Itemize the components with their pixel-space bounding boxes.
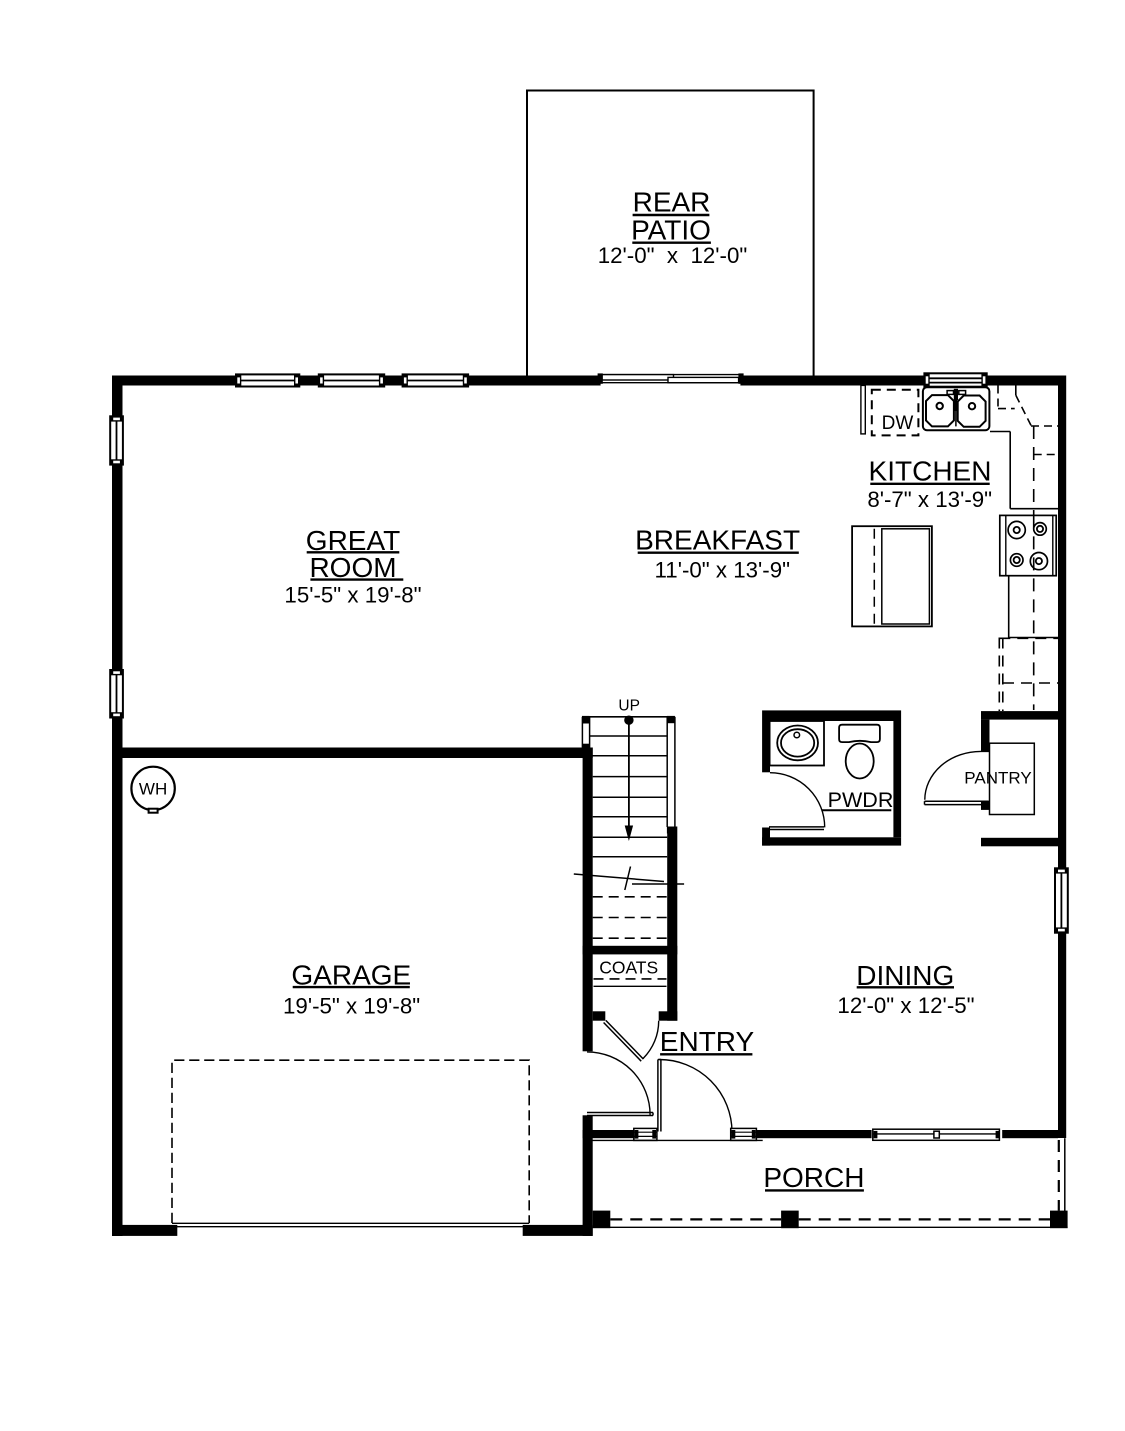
svg-text:PANTRY: PANTRY	[964, 769, 1031, 788]
svg-text:15'-5" x 19'-8": 15'-5" x 19'-8"	[284, 582, 421, 607]
svg-text:COATS: COATS	[599, 957, 658, 977]
svg-text:PWDR: PWDR	[828, 788, 894, 812]
svg-text:UP: UP	[618, 698, 640, 715]
svg-text:WH: WH	[139, 780, 167, 799]
svg-text:GARAGE: GARAGE	[291, 960, 411, 991]
svg-text:PORCH: PORCH	[763, 1162, 864, 1193]
svg-text:11'-0" x 13'-9": 11'-0" x 13'-9"	[655, 558, 790, 583]
svg-text:12'-0" x 12'-0": 12'-0" x 12'-0"	[598, 243, 748, 268]
svg-text:KITCHEN: KITCHEN	[869, 456, 992, 487]
svg-text:PATIO: PATIO	[631, 214, 711, 245]
svg-text:ENTRY: ENTRY	[660, 1026, 755, 1057]
svg-text:BREAKFAST: BREAKFAST	[635, 525, 800, 556]
svg-text:REAR: REAR	[633, 186, 711, 217]
svg-text:8'-7" x 13'-9": 8'-7" x 13'-9"	[867, 487, 992, 512]
svg-text:12'-0" x 12'-5": 12'-0" x 12'-5"	[837, 993, 974, 1018]
svg-text:19'-5" x 19'-8": 19'-5" x 19'-8"	[283, 994, 420, 1019]
svg-text:DW: DW	[882, 413, 914, 434]
